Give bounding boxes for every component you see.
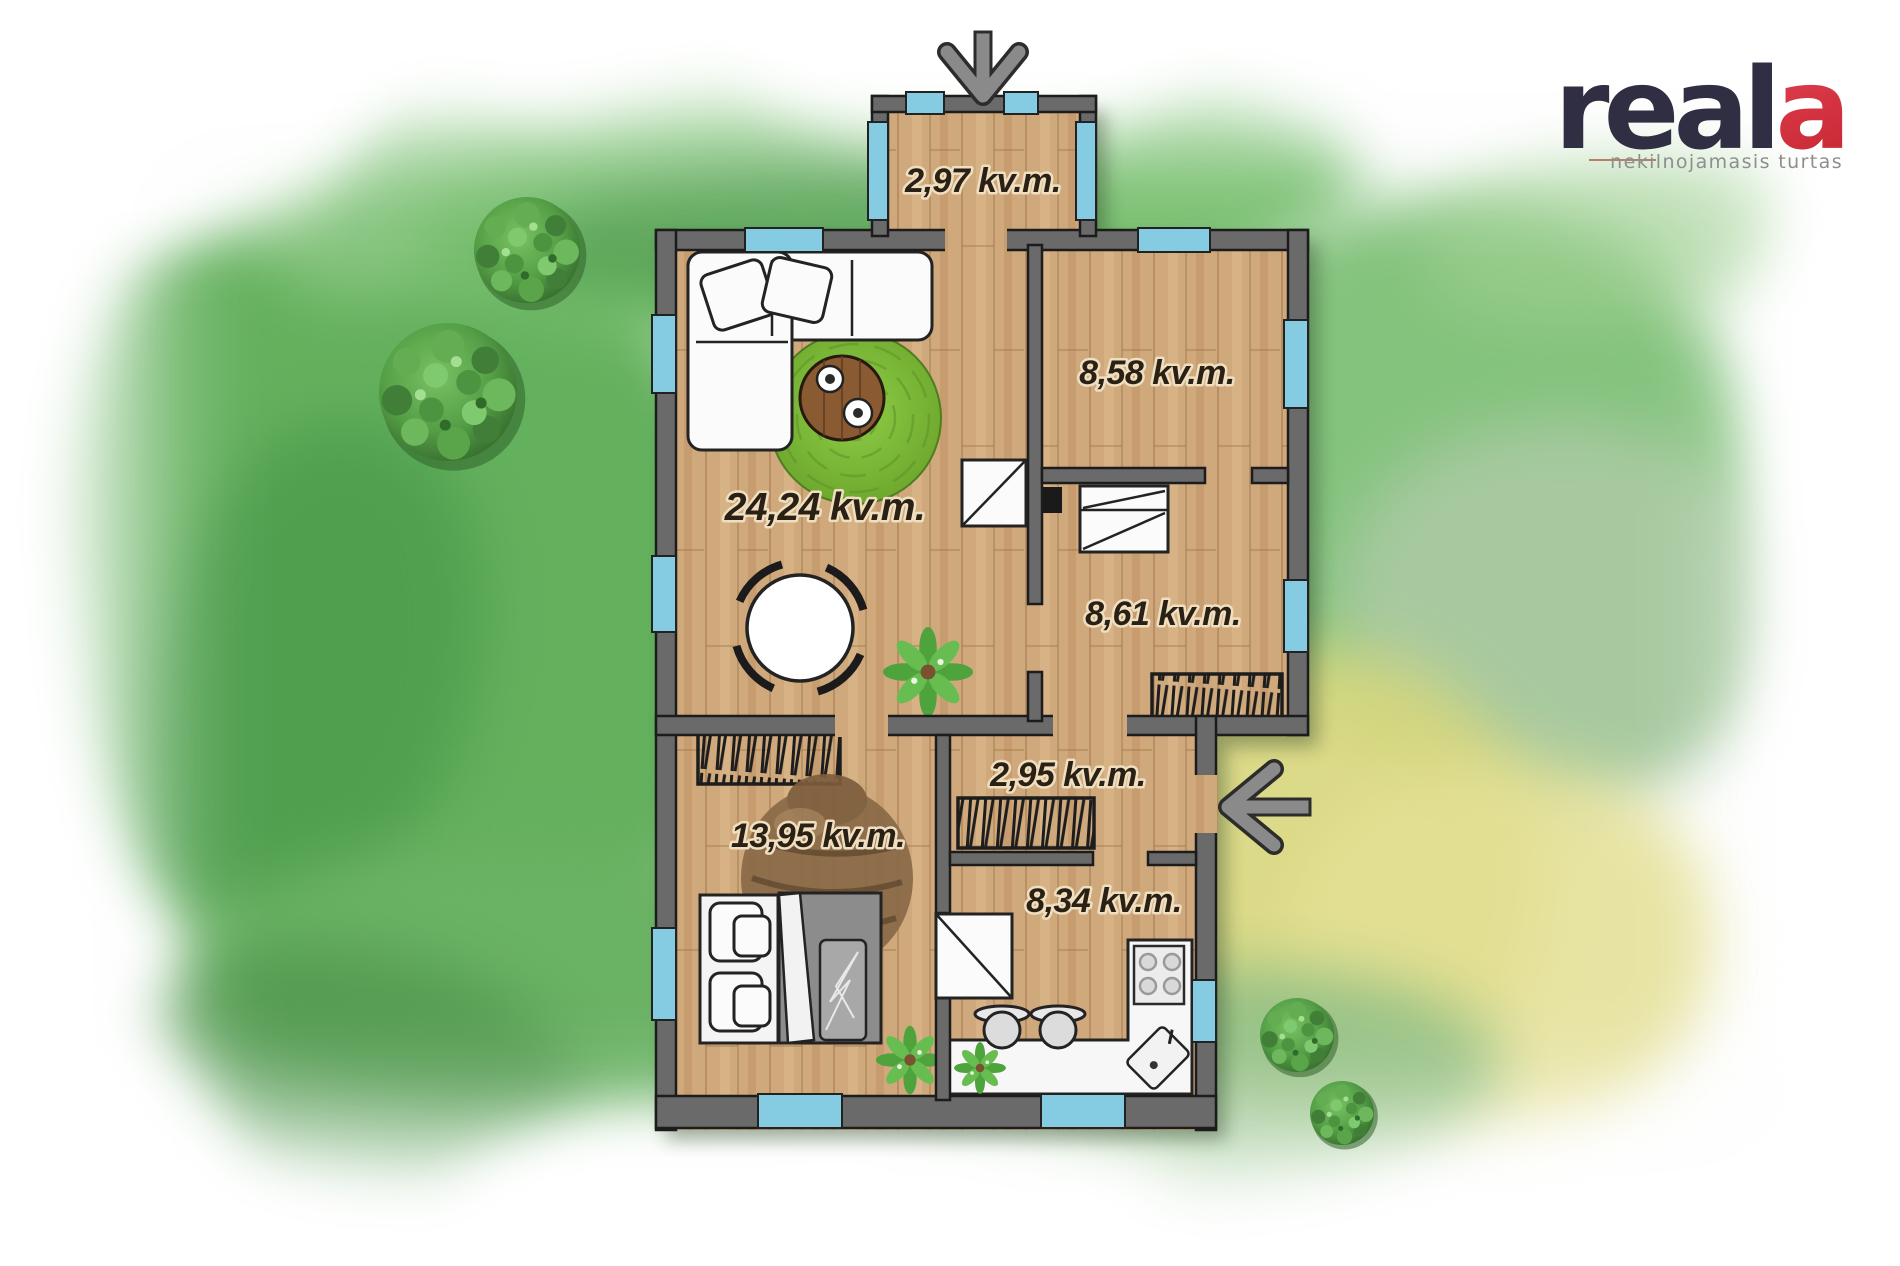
arrow-down-icon (947, 32, 1019, 96)
brand-logo: reala nekilnojamasis turtas (1554, 45, 1845, 175)
room-label-room-bottom-left: 13,95 kv.m. (731, 817, 905, 855)
room-label-living-room: 24,24 kv.m. (724, 486, 926, 529)
garden-floorplan-scene: 2,97 kv.m. 24,24 kv.m. 8,58 kv.m. 8,61 k… (0, 0, 1900, 1266)
bush (379, 323, 525, 471)
brand-tagline: nekilnojamasis turtas (1610, 151, 1843, 173)
room-label-room-right: 8,61 kv.m. (1085, 595, 1241, 633)
room-label-kitchen: 8,34 kv.m. (1026, 882, 1182, 920)
radiator (1152, 674, 1282, 718)
room-label-room-top-right: 8,58 kv.m. (1079, 354, 1235, 392)
bed (1080, 486, 1168, 552)
dining-table (747, 575, 853, 681)
arrow-left-icon (1228, 769, 1310, 845)
nightstand (1042, 487, 1062, 513)
glass-panel (820, 940, 866, 1040)
bush (1260, 998, 1338, 1077)
radiator (958, 798, 1094, 848)
room-label-entry-porch: 2,97 kv.m. (904, 162, 1061, 200)
bush (474, 197, 586, 310)
bush (1310, 1081, 1378, 1149)
room-label-hallway: 2,95 kv.m. (989, 756, 1146, 794)
floor-plan-svg: 2,97 kv.m. 24,24 kv.m. 8,58 kv.m. 8,61 k… (0, 0, 1900, 1266)
